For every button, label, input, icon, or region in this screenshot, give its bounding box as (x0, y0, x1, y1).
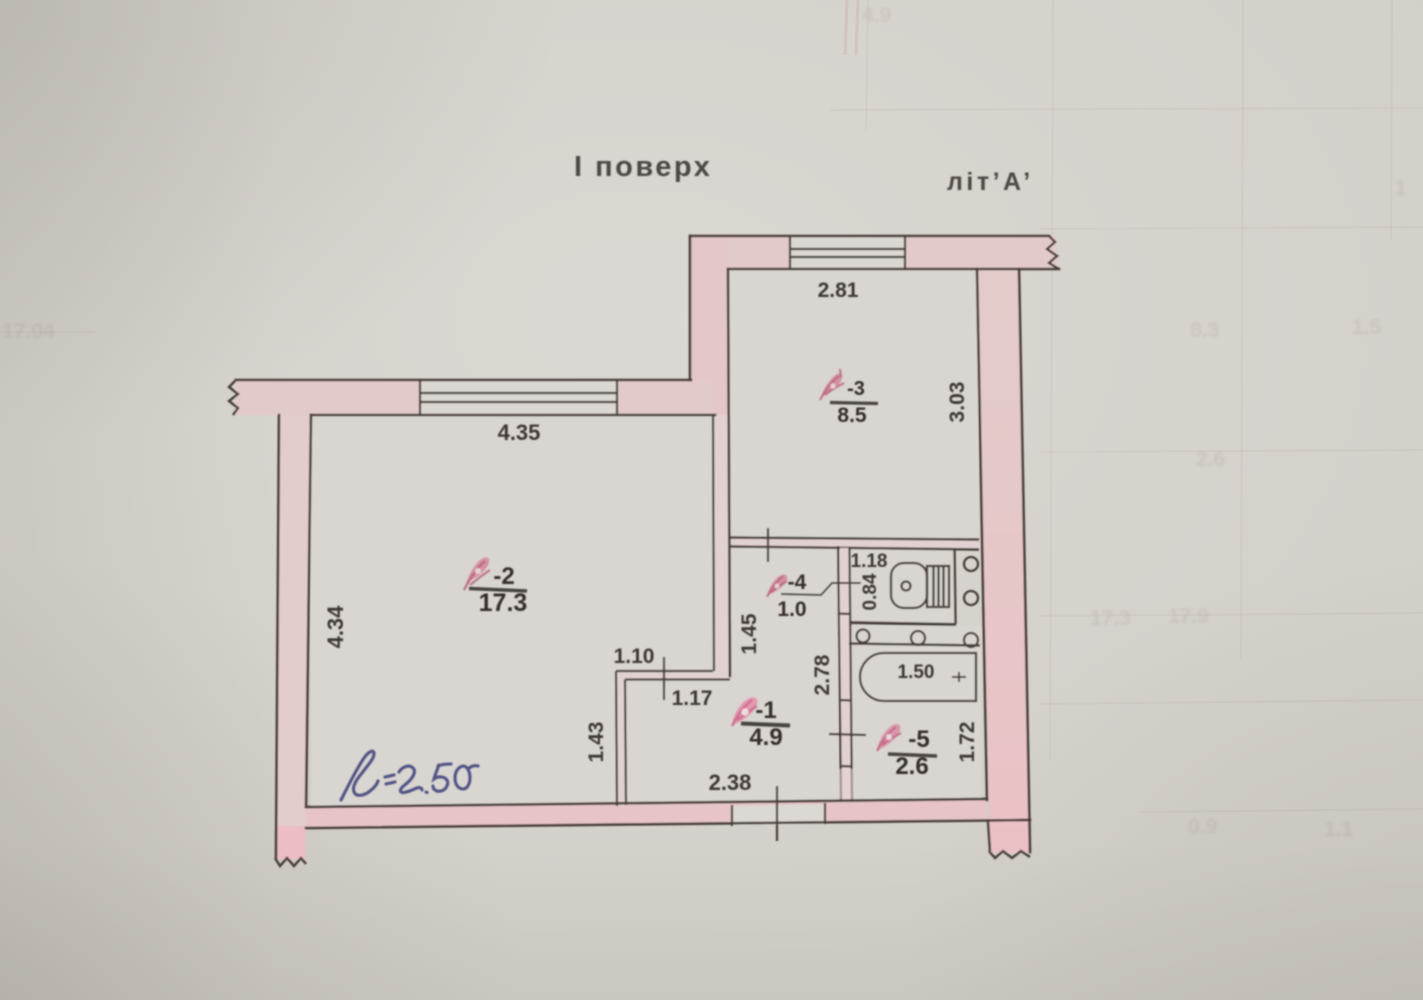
svg-text:4.35: 4.35 (498, 420, 541, 445)
svg-text:літ’А’: літ’А’ (947, 168, 1034, 196)
svg-text:-5: -5 (908, 726, 929, 753)
svg-text:1.43: 1.43 (585, 722, 608, 763)
svg-text:-2: -2 (493, 563, 514, 590)
svg-text:4.34: 4.34 (323, 605, 348, 649)
svg-text:17.9: 17.9 (1168, 605, 1209, 628)
svg-text:0.84: 0.84 (860, 573, 881, 610)
svg-text:0.9: 0.9 (1188, 815, 1217, 838)
svg-text:-3: -3 (847, 378, 865, 400)
svg-text:1.45: 1.45 (738, 613, 761, 654)
svg-text:1.0: 1.0 (777, 598, 806, 621)
svg-text:17.3: 17.3 (1090, 607, 1131, 630)
svg-text:1.1: 1.1 (1324, 818, 1354, 841)
svg-text:1.18: 1.18 (851, 551, 888, 572)
svg-text:1.17: 1.17 (672, 687, 713, 710)
svg-text:17.04: 17.04 (2, 320, 55, 343)
svg-text:1: 1 (1395, 177, 1407, 200)
svg-text:8.3: 8.3 (1190, 319, 1219, 342)
svg-text:1.5: 1.5 (1352, 316, 1382, 339)
svg-text:2.38: 2.38 (709, 770, 752, 795)
svg-text:2.6: 2.6 (1196, 448, 1225, 471)
svg-text:8.5: 8.5 (837, 404, 867, 427)
svg-text:3.03: 3.03 (946, 382, 969, 423)
svg-text:1.50: 1.50 (898, 662, 935, 683)
svg-text:2.81: 2.81 (818, 279, 859, 302)
svg-text:2.6: 2.6 (895, 753, 928, 780)
svg-text:4.9: 4.9 (749, 724, 782, 751)
svg-text:І поверх: І поверх (574, 151, 712, 183)
svg-text:4.9: 4.9 (862, 4, 891, 27)
svg-text:-4: -4 (788, 571, 807, 594)
svg-text:-1: -1 (755, 697, 776, 724)
svg-text:2.78: 2.78 (811, 654, 834, 695)
svg-text:1.72: 1.72 (956, 722, 979, 763)
svg-text:17.3: 17.3 (479, 589, 528, 617)
svg-text:1.10: 1.10 (614, 645, 655, 668)
